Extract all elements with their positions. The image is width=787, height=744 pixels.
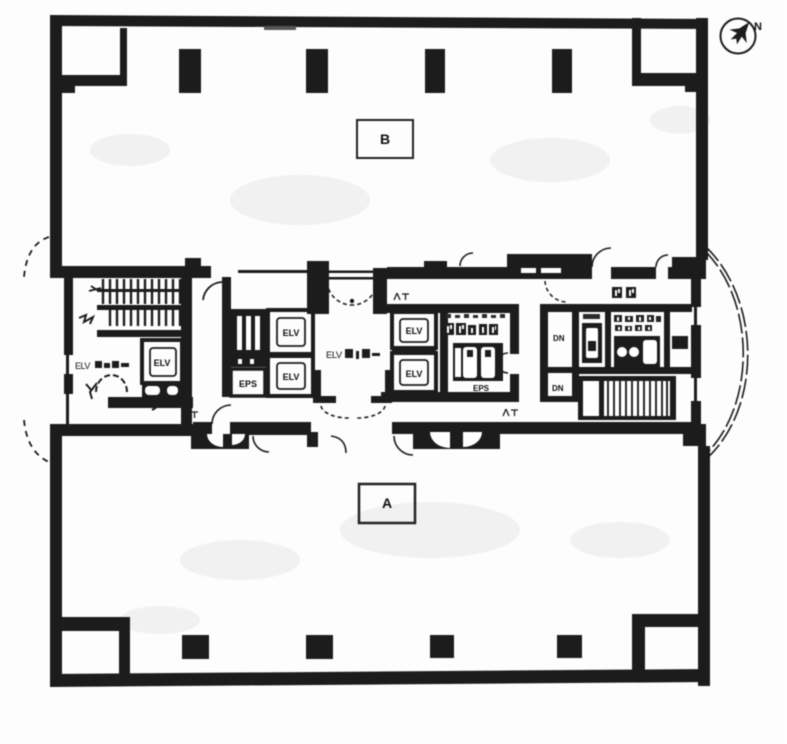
svg-text:R.B: R.B [675,341,686,348]
svg-text:ELV: ELV [283,328,300,338]
svg-text:ELV: ELV [406,326,423,336]
svg-text:ELV: ELV [406,369,423,379]
svg-text:EPS: EPS [239,379,257,389]
svg-text:B: B [380,131,390,147]
svg-text:ELV: ELV [283,372,300,382]
svg-text:DN: DN [552,384,564,393]
svg-text:ELV: ELV [326,350,343,361]
svg-text:A: A [382,495,392,511]
svg-text:N: N [754,21,762,33]
svg-text:ELV: ELV [75,361,90,371]
svg-text:ELV: ELV [154,358,171,368]
svg-text:DN: DN [553,334,565,343]
svg-text:EPS: EPS [473,384,490,393]
